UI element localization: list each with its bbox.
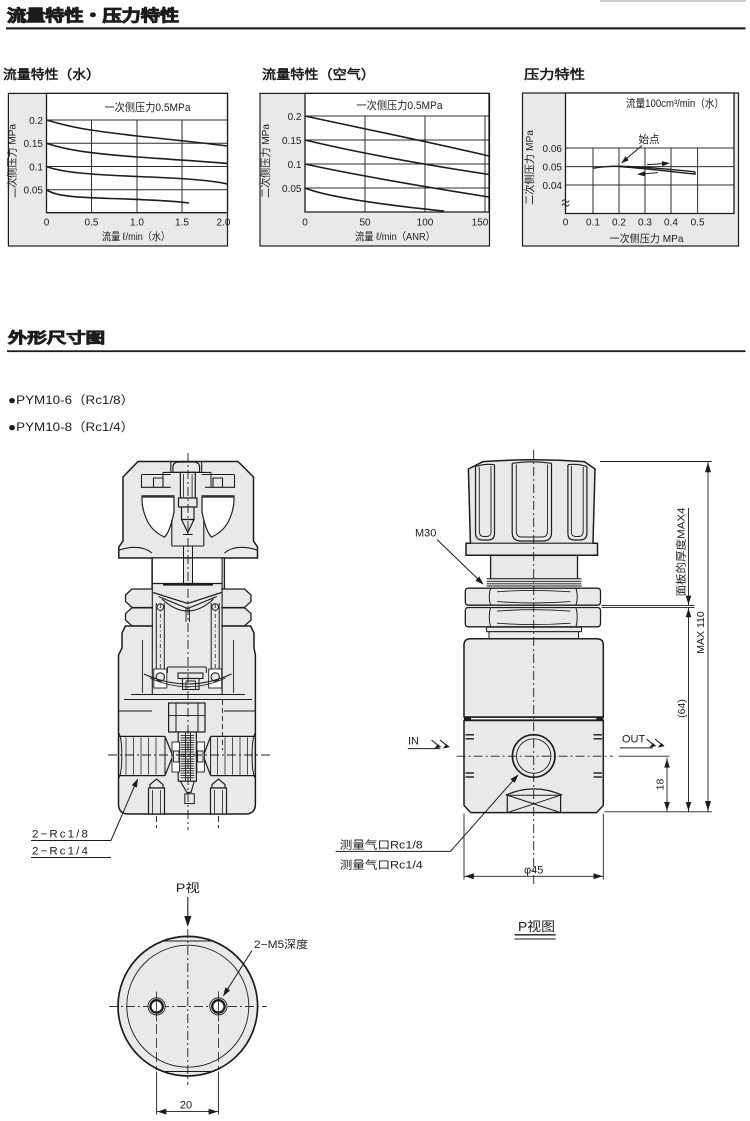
svg-text:M30: M30 [415, 528, 436, 540]
svg-text:OUT: OUT [622, 734, 646, 746]
svg-text:0.5: 0.5 [85, 218, 99, 229]
svg-text:流量 ℓ/min（ANR）: 流量 ℓ/min（ANR） [355, 230, 435, 243]
svg-text:φ45: φ45 [524, 865, 543, 877]
svg-text:二次侧压力 MPa: 二次侧压力 MPa [523, 130, 536, 205]
svg-text:P视: P视 [176, 880, 200, 895]
svg-text:压力特性: 压力特性 [524, 67, 585, 82]
svg-text:MAX 110: MAX 110 [695, 611, 707, 654]
svg-text:流量特性（空气）: 流量特性（空气） [262, 67, 375, 82]
svg-text:一次侧压力0.5MPa: 一次侧压力0.5MPa [105, 100, 192, 114]
svg-text:2.0: 2.0 [217, 218, 231, 229]
svg-text:0.4: 0.4 [664, 218, 678, 229]
svg-text:150: 150 [472, 218, 489, 229]
svg-text:二次侧压力 MPa: 二次侧压力 MPa [6, 124, 19, 198]
svg-text:流量100cm³/min（水）: 流量100cm³/min（水） [626, 96, 724, 110]
svg-text:0.2: 0.2 [29, 116, 43, 127]
svg-text:测量气口Rc1/8: 测量气口Rc1/8 [340, 838, 423, 852]
svg-text:一次侧压力 MPa: 一次侧压力 MPa [610, 232, 684, 245]
svg-text:流量特性（水）: 流量特性（水） [3, 67, 100, 82]
svg-text:0.06: 0.06 [543, 144, 563, 155]
svg-text:0.3: 0.3 [638, 218, 652, 229]
svg-text:二次侧压力 MPa: 二次侧压力 MPa [259, 124, 272, 198]
svg-text:IN: IN [408, 736, 419, 748]
svg-text:1.5: 1.5 [175, 218, 189, 229]
svg-text:2−Rc1/4: 2−Rc1/4 [32, 846, 90, 858]
svg-text:0.1: 0.1 [29, 162, 43, 173]
svg-text:流量特性・压力特性: 流量特性・压力特性 [7, 6, 179, 25]
svg-text:一次侧压力0.5MPa: 一次侧压力0.5MPa [357, 98, 444, 112]
svg-text:0.15: 0.15 [282, 136, 302, 147]
svg-text:0.04: 0.04 [543, 181, 563, 192]
svg-text:100: 100 [417, 218, 434, 229]
svg-text:0.2: 0.2 [288, 112, 302, 123]
svg-text:20: 20 [180, 1100, 192, 1112]
svg-text:2−Rc1/8: 2−Rc1/8 [32, 829, 90, 841]
svg-text:0: 0 [302, 218, 308, 229]
svg-text:●PYM10-6（Rc1/8）: ●PYM10-6（Rc1/8） [8, 393, 134, 407]
svg-text:0.05: 0.05 [282, 184, 302, 195]
svg-text:外形尺寸图: 外形尺寸图 [8, 329, 105, 347]
svg-text:(64): (64) [676, 699, 688, 718]
svg-text:始点: 始点 [639, 132, 660, 146]
svg-text:18: 18 [655, 779, 667, 791]
svg-text:0.2: 0.2 [612, 218, 626, 229]
svg-text:0: 0 [563, 218, 569, 229]
svg-text:2−M5深度: 2−M5深度 [254, 937, 308, 951]
svg-text:●PYM10-8（Rc1/4）: ●PYM10-8（Rc1/4） [8, 420, 134, 434]
svg-text:0: 0 [44, 218, 50, 229]
svg-text:P视图: P视图 [518, 919, 555, 934]
svg-text:1.0: 1.0 [130, 218, 144, 229]
svg-text:0.1: 0.1 [288, 160, 302, 171]
svg-text:0.05: 0.05 [543, 162, 563, 173]
svg-text:0.5: 0.5 [691, 218, 705, 229]
svg-text:测量气口Rc1/4: 测量气口Rc1/4 [340, 858, 423, 872]
svg-text:0.15: 0.15 [24, 139, 44, 150]
svg-text:0.1: 0.1 [586, 218, 600, 229]
svg-text:流量 ℓ/min（水）: 流量 ℓ/min（水） [102, 230, 170, 243]
svg-text:面板的厚度MAX4: 面板的厚度MAX4 [675, 507, 688, 596]
svg-text:50: 50 [359, 218, 371, 229]
svg-text:0.05: 0.05 [24, 186, 44, 197]
